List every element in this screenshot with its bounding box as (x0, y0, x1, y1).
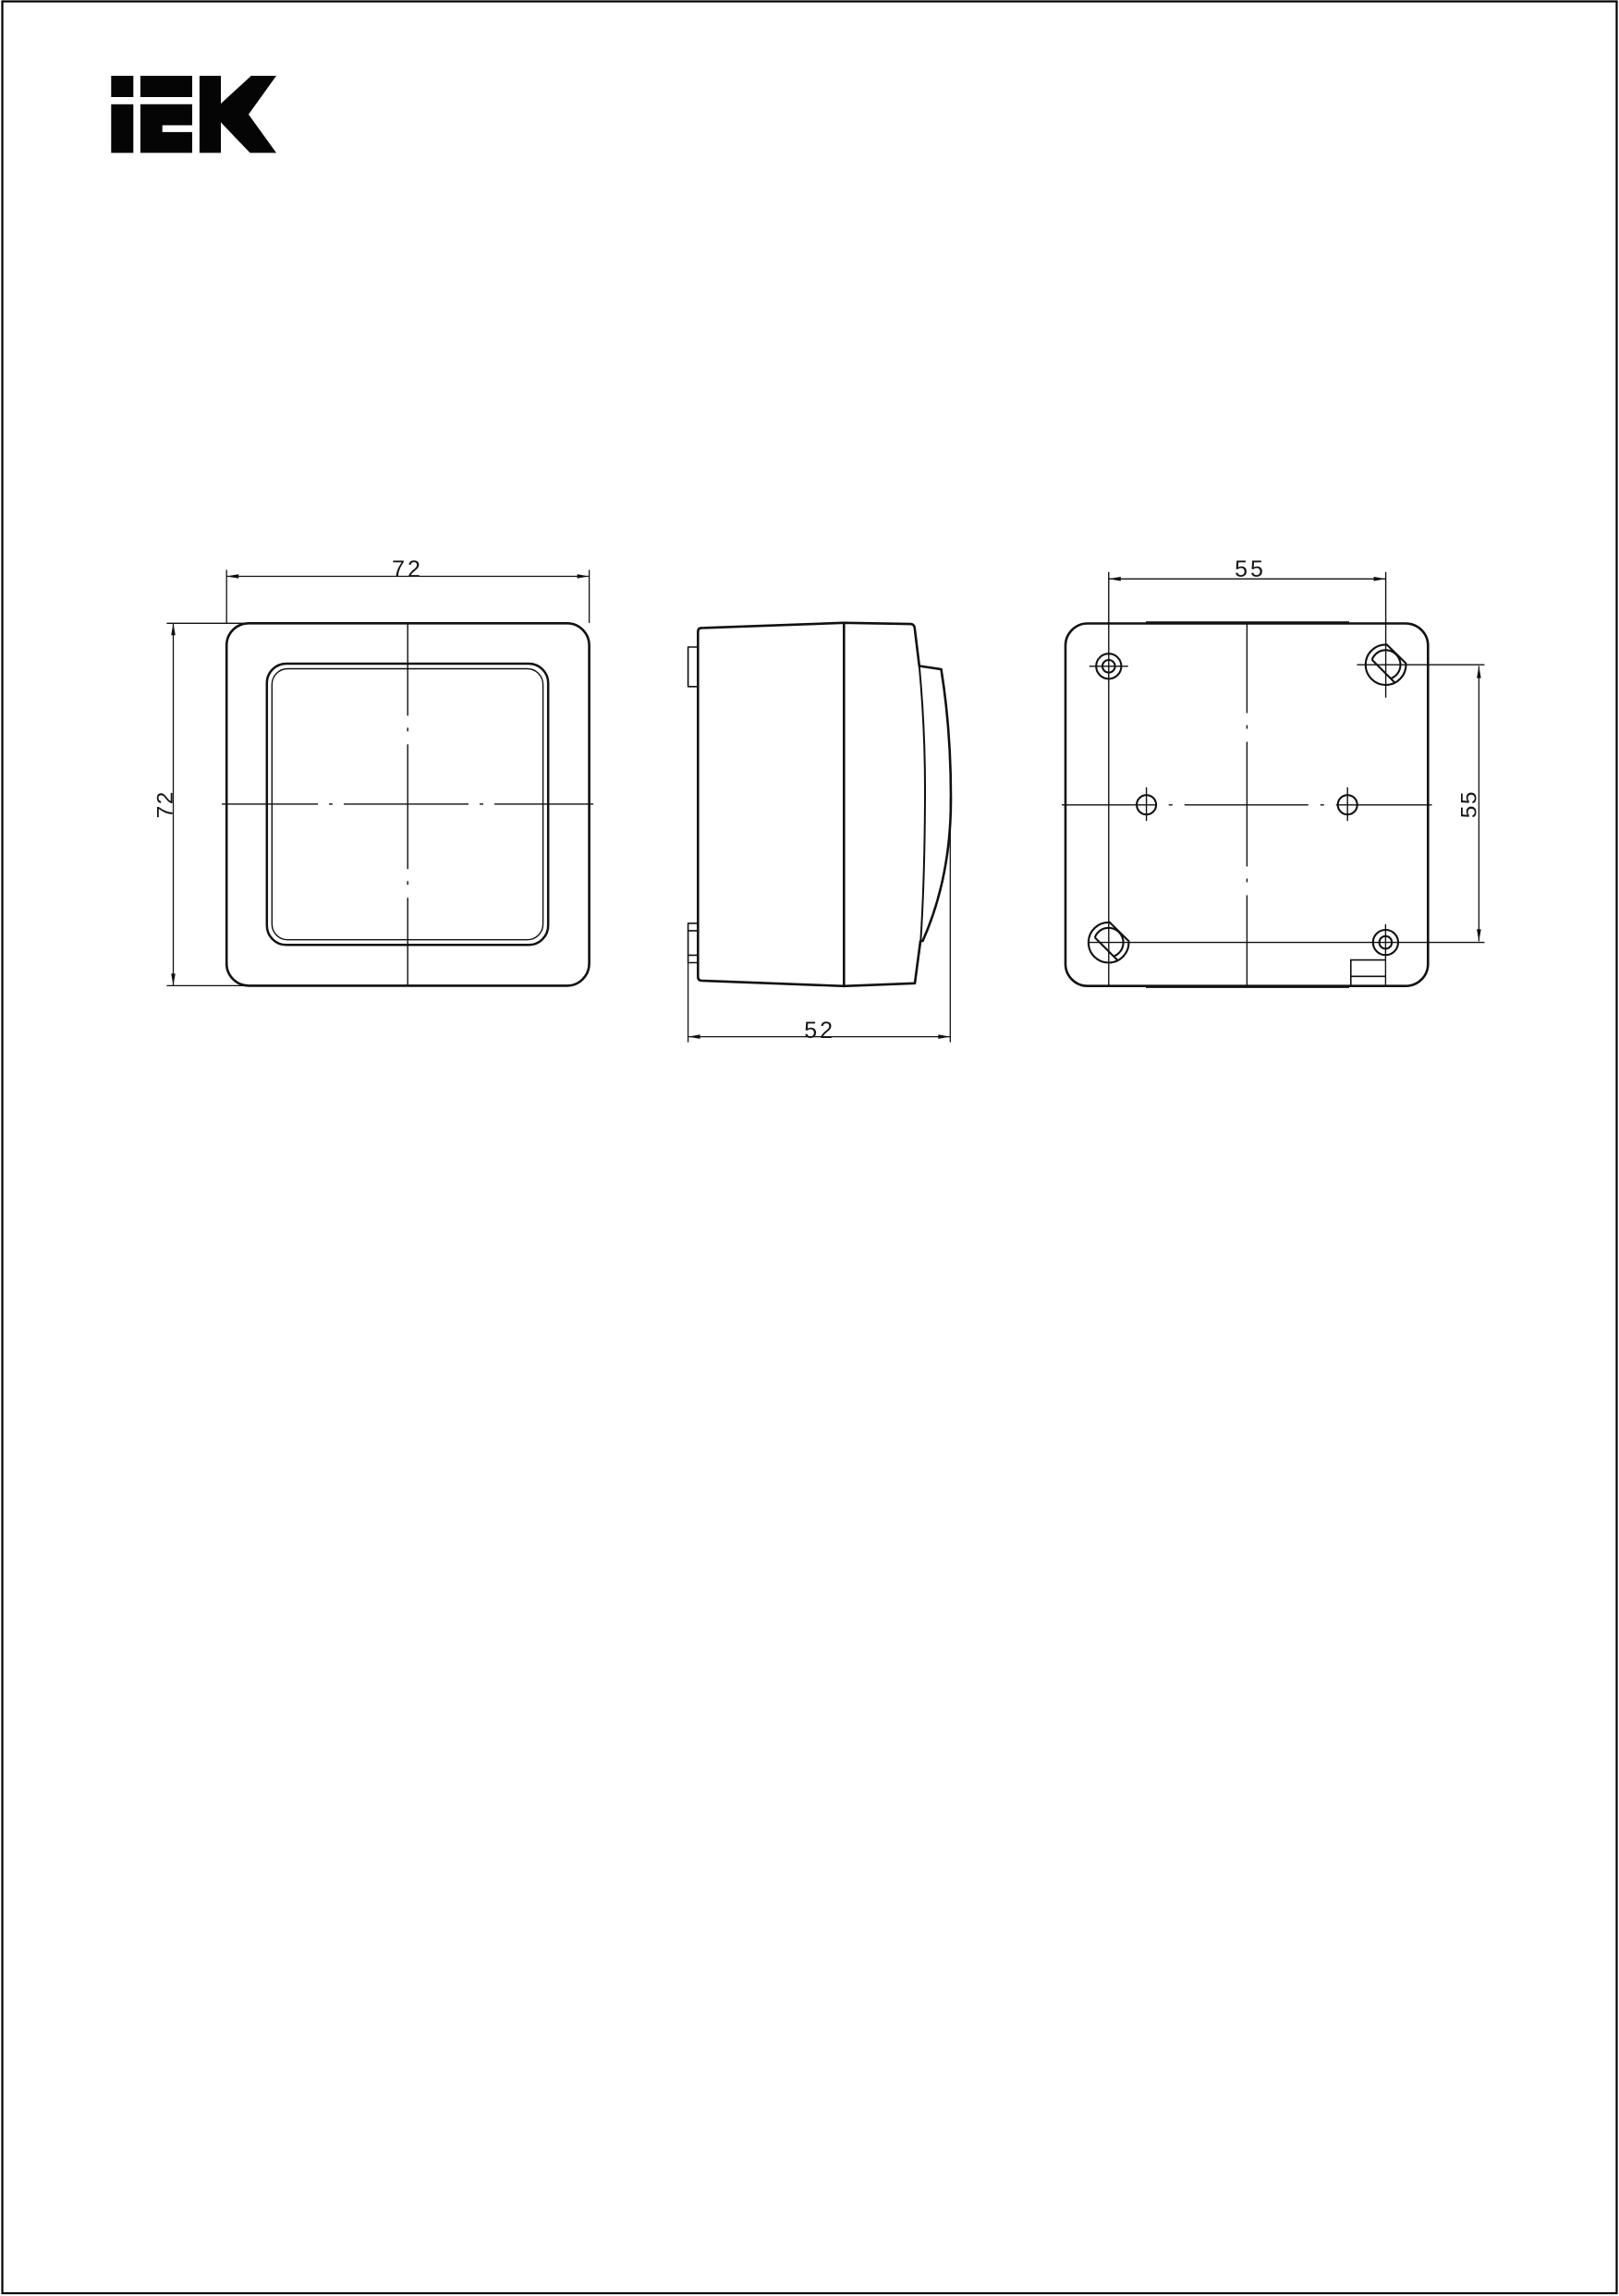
svg-text:55: 55 (1457, 790, 1482, 818)
svg-text:72: 72 (392, 556, 423, 582)
svg-text:55: 55 (1235, 556, 1266, 582)
svg-text:72: 72 (152, 790, 177, 818)
svg-text:52: 52 (804, 1018, 835, 1044)
